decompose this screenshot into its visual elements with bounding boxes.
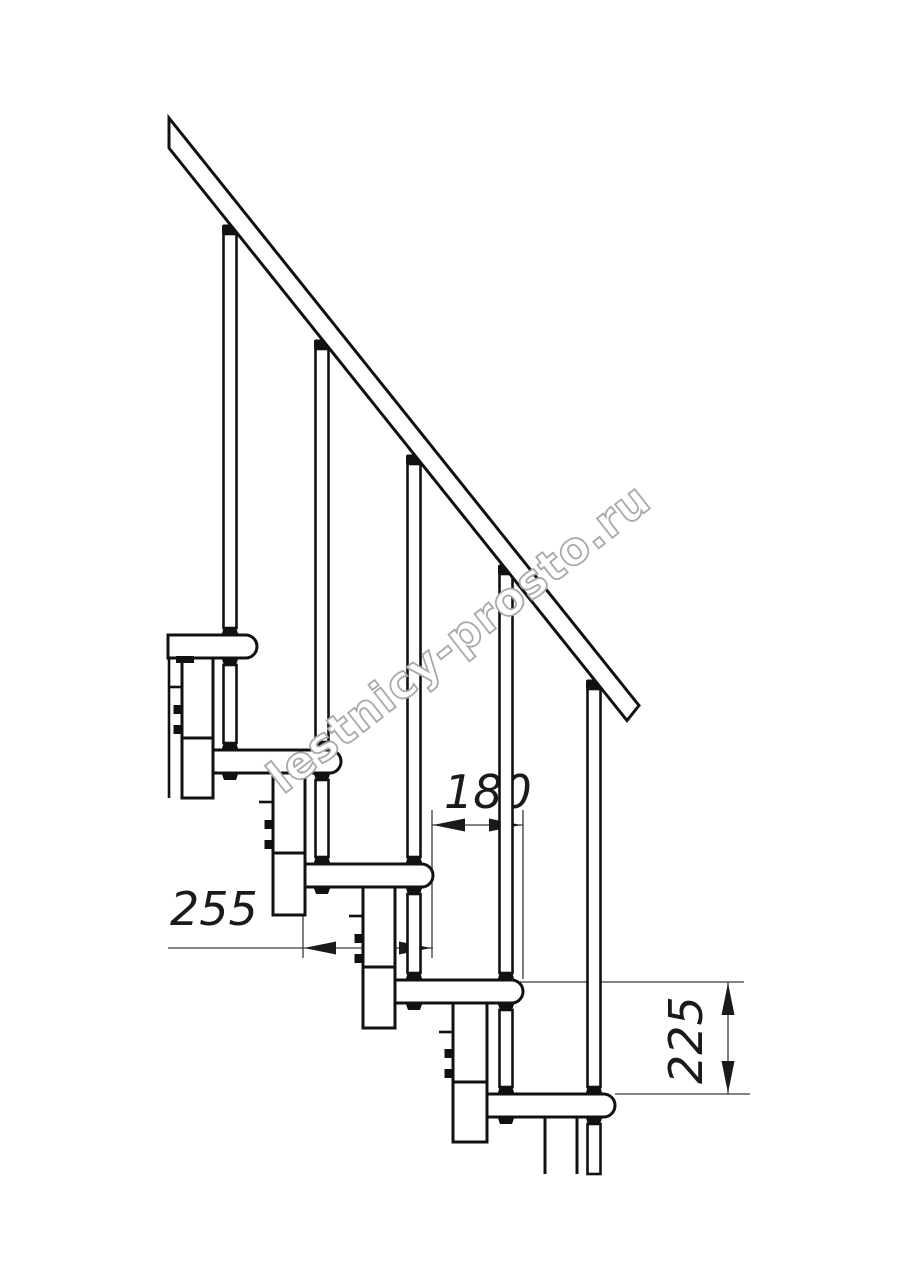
baluster-shaft bbox=[224, 234, 237, 628]
tread-mount-icon bbox=[406, 972, 423, 980]
staircase-drawing: 255 180 225 bbox=[0, 0, 914, 1280]
handrail bbox=[169, 118, 639, 721]
tread-5 bbox=[487, 1094, 615, 1117]
arrowhead-left-icon bbox=[304, 942, 336, 955]
under-tread-mount-icon bbox=[498, 1003, 515, 1010]
tread-body bbox=[168, 635, 257, 658]
dimension-step-rise-225: 225 bbox=[520, 982, 750, 1094]
tread-1 bbox=[168, 635, 257, 658]
baluster-1 bbox=[224, 234, 237, 743]
support-column-4 bbox=[439, 1003, 487, 1142]
support-column-3 bbox=[349, 887, 395, 1028]
baluster-shaft bbox=[316, 780, 329, 857]
tread-4 bbox=[395, 980, 523, 1003]
column-body bbox=[182, 658, 213, 798]
technical-drawing-canvas: 255 180 225 bbox=[0, 0, 914, 1280]
arrowhead-up-icon bbox=[722, 983, 735, 1015]
under-tread-mount-icon bbox=[406, 887, 423, 894]
tread-mount-icon bbox=[586, 1086, 603, 1094]
arrowhead-down-icon bbox=[722, 1061, 735, 1093]
under-tread-mount-icon bbox=[498, 1117, 515, 1124]
under-tread-mount-icon bbox=[222, 658, 239, 665]
support-column-5 bbox=[545, 1117, 577, 1174]
bolt-icon bbox=[174, 725, 184, 734]
baluster-shaft bbox=[316, 349, 329, 742]
arrowhead-left-icon bbox=[433, 819, 465, 832]
tread-mount-icon bbox=[498, 972, 515, 980]
tread-mount-icon bbox=[314, 856, 331, 864]
tread-mount-icon bbox=[222, 627, 239, 635]
bolt-icon bbox=[355, 934, 365, 943]
column-body bbox=[453, 1003, 487, 1142]
tread-3 bbox=[305, 864, 433, 887]
under-tread-mount-icon bbox=[406, 1003, 423, 1010]
bolt-icon bbox=[265, 840, 275, 849]
baluster-shaft bbox=[588, 689, 601, 1087]
tread-body bbox=[305, 864, 433, 887]
dimension-label-step-rise: 225 bbox=[659, 996, 713, 1084]
baluster-3 bbox=[408, 464, 421, 973]
tread-body bbox=[395, 980, 523, 1003]
tread-body bbox=[487, 1094, 615, 1117]
bolt-icon bbox=[445, 1049, 455, 1058]
bolt-icon bbox=[265, 820, 275, 829]
dimension-label-step-run: 180 bbox=[444, 765, 532, 819]
column-body bbox=[363, 887, 395, 1028]
bolt-icon bbox=[445, 1069, 455, 1078]
bolt-icon bbox=[174, 705, 184, 714]
handrail-band bbox=[169, 118, 639, 721]
dimension-label-tread-depth: 255 bbox=[170, 882, 258, 936]
under-tread-mount-icon bbox=[314, 887, 331, 894]
baluster-shaft bbox=[408, 894, 421, 973]
baluster-shaft bbox=[588, 1124, 601, 1174]
under-tread-mount-icon bbox=[222, 773, 239, 780]
bolt-icon bbox=[355, 954, 365, 963]
baluster-4 bbox=[500, 574, 513, 1087]
under-tread-mount-icon bbox=[586, 1117, 603, 1124]
baluster-shaft bbox=[224, 665, 237, 743]
tread-mount-icon bbox=[406, 856, 423, 864]
tread-mount-icon bbox=[498, 1086, 515, 1094]
under-tread-mount-icon bbox=[176, 656, 194, 663]
dimension-step-run-180: 180 bbox=[432, 765, 532, 979]
baluster-shaft bbox=[500, 1010, 513, 1087]
tread-mount-icon bbox=[222, 742, 239, 750]
